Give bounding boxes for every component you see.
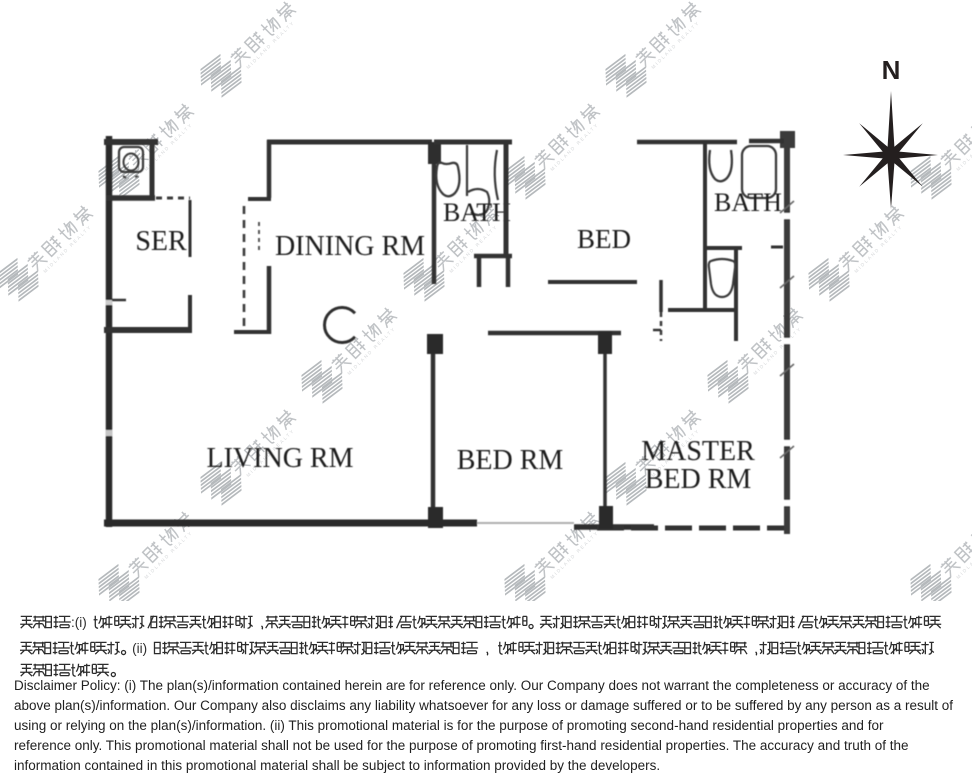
svg-text:SER: SER [135,226,187,257]
svg-text:BATH: BATH [714,188,782,217]
svg-text:information contained in this: information contained in this promotiona… [14,758,660,773]
svg-text:N: N [882,55,901,85]
svg-text:above plan(s)/information. Our: above plan(s)/information. Our Company a… [14,698,953,713]
svg-text:BED: BED [577,224,631,254]
svg-text:LIVING RM: LIVING RM [207,443,354,474]
svg-text:(ii): (ii) [132,641,147,656]
svg-text:Disclaimer Policy: (i) The pla: Disclaimer Policy: (i) The plan(s)/infor… [14,678,930,693]
svg-text:using or relying on the plan(s: using or relying on the plan(s)/informat… [14,718,884,733]
svg-text:reference only. This promotion: reference only. This promotional materia… [14,738,909,753]
svg-text:DINING RM: DINING RM [275,231,425,262]
svg-text:BATH: BATH [443,198,511,227]
svg-text:BED RM: BED RM [457,445,564,476]
svg-text:BED RM: BED RM [645,464,752,495]
svg-text:MASTER: MASTER [641,436,755,467]
svg-text::(i): :(i) [71,615,87,630]
